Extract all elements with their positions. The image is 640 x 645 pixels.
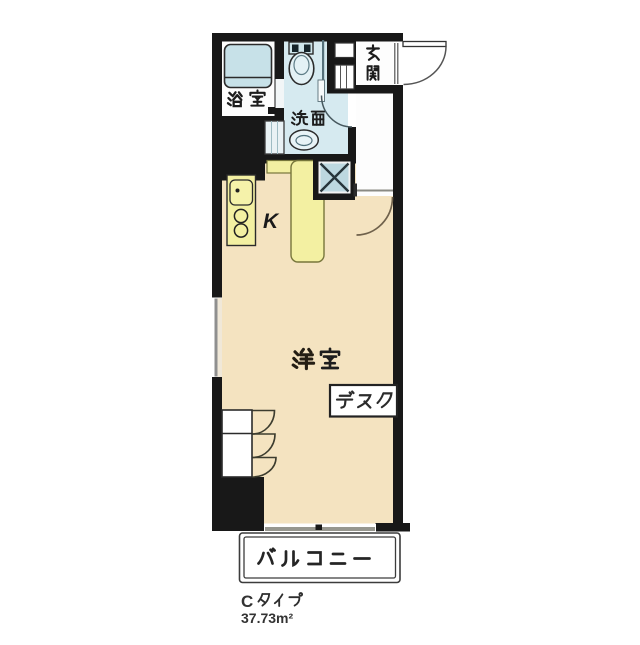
svg-text:C: C xyxy=(241,592,253,611)
svg-text:37.73m²: 37.73m² xyxy=(241,610,293,626)
svg-text:K: K xyxy=(263,210,280,233)
